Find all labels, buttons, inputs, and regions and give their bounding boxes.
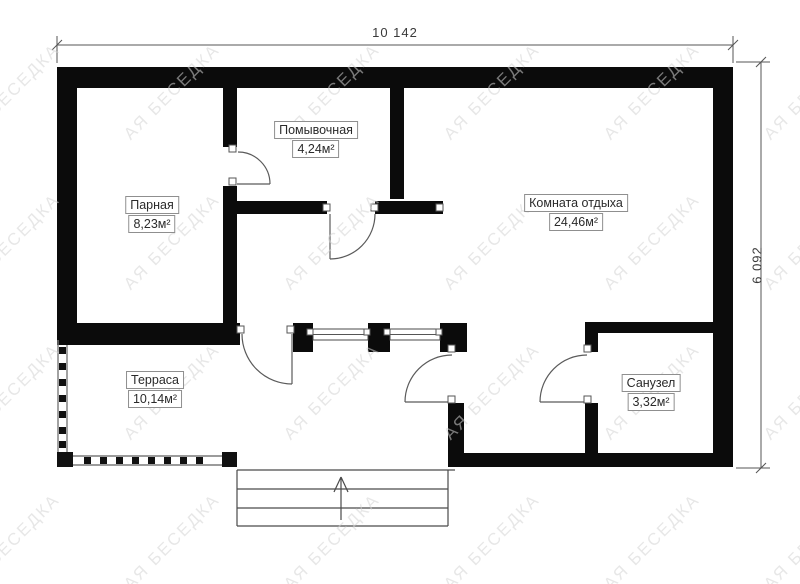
dimension-height-label: 6 092 [750, 246, 765, 284]
room-name: Терраса [126, 371, 184, 389]
window-pier-1 [293, 323, 313, 352]
room-area: 3,32м² [627, 393, 674, 411]
wall-middle-left [57, 323, 240, 345]
door-arc-parnaya [238, 152, 270, 184]
wall-pomyvochnaya-right [390, 88, 404, 199]
jamb [371, 204, 378, 211]
jamb [584, 345, 591, 352]
wall-bottom [448, 453, 733, 467]
railing-end-post [222, 452, 237, 467]
jamb [448, 396, 455, 403]
room-label-sanuzel: Санузел 3,32м² [622, 374, 681, 411]
jamb [307, 329, 313, 335]
wall-parnaya-lower [223, 186, 237, 345]
jamb [364, 329, 370, 335]
room-name: Помывочная [274, 121, 358, 139]
room-name: Санузел [622, 374, 681, 392]
jamb [229, 178, 236, 185]
dimension-top [52, 36, 738, 63]
jamb [436, 204, 443, 211]
room-area: 8,23м² [128, 215, 175, 233]
room-name: Комната отдыха [524, 194, 628, 212]
wall-pomyvochnaya-bottom-right [375, 201, 443, 214]
wall-entry-lower [448, 403, 464, 467]
wall-top [57, 67, 733, 88]
wall-sanuzel-top [585, 322, 713, 333]
jamb [287, 326, 294, 333]
room-area: 10,14м² [128, 390, 182, 408]
jamb [584, 396, 591, 403]
jamb [436, 329, 442, 335]
jamb [448, 345, 455, 352]
jamb [237, 326, 244, 333]
door-arc-sanuzel [540, 355, 587, 402]
room-area: 24,46м² [549, 213, 603, 231]
stairs [237, 470, 455, 526]
room-area: 4,24м² [292, 140, 339, 158]
jamb [323, 204, 330, 211]
plan-linework [0, 0, 800, 584]
stairs-up-arrow-icon [334, 477, 348, 520]
window-pier-2 [368, 323, 390, 352]
wall-left [57, 67, 77, 345]
room-label-parnaya: Парная 8,23м² [125, 196, 179, 233]
dimension-width-label: 10 142 [357, 25, 433, 40]
floor-plan-canvas: АЯ БЕСЕДКААЯ БЕСЕДКААЯ БЕСЕДКААЯ БЕСЕДКА… [0, 0, 800, 584]
wall-right [713, 67, 733, 467]
jamb [229, 145, 236, 152]
room-label-terrasa: Терраса 10,14м² [126, 371, 184, 408]
jamb [384, 329, 390, 335]
railing-corner-post [57, 452, 73, 467]
room-label-komnata-otdyha: Комната отдыха 24,46м² [524, 194, 628, 231]
wall-pomyvochnaya-bottom-left [237, 201, 327, 214]
door-arc-terrace [242, 334, 292, 384]
door-arc-entry [405, 355, 452, 402]
door-arc-pomyvochnaya [330, 214, 375, 259]
room-name: Парная [125, 196, 179, 214]
wall-parnaya-upper [223, 88, 237, 147]
wall-sanuzel-left-lower [585, 403, 598, 453]
room-label-pomyvochnaya: Помывочная 4,24м² [274, 121, 358, 158]
